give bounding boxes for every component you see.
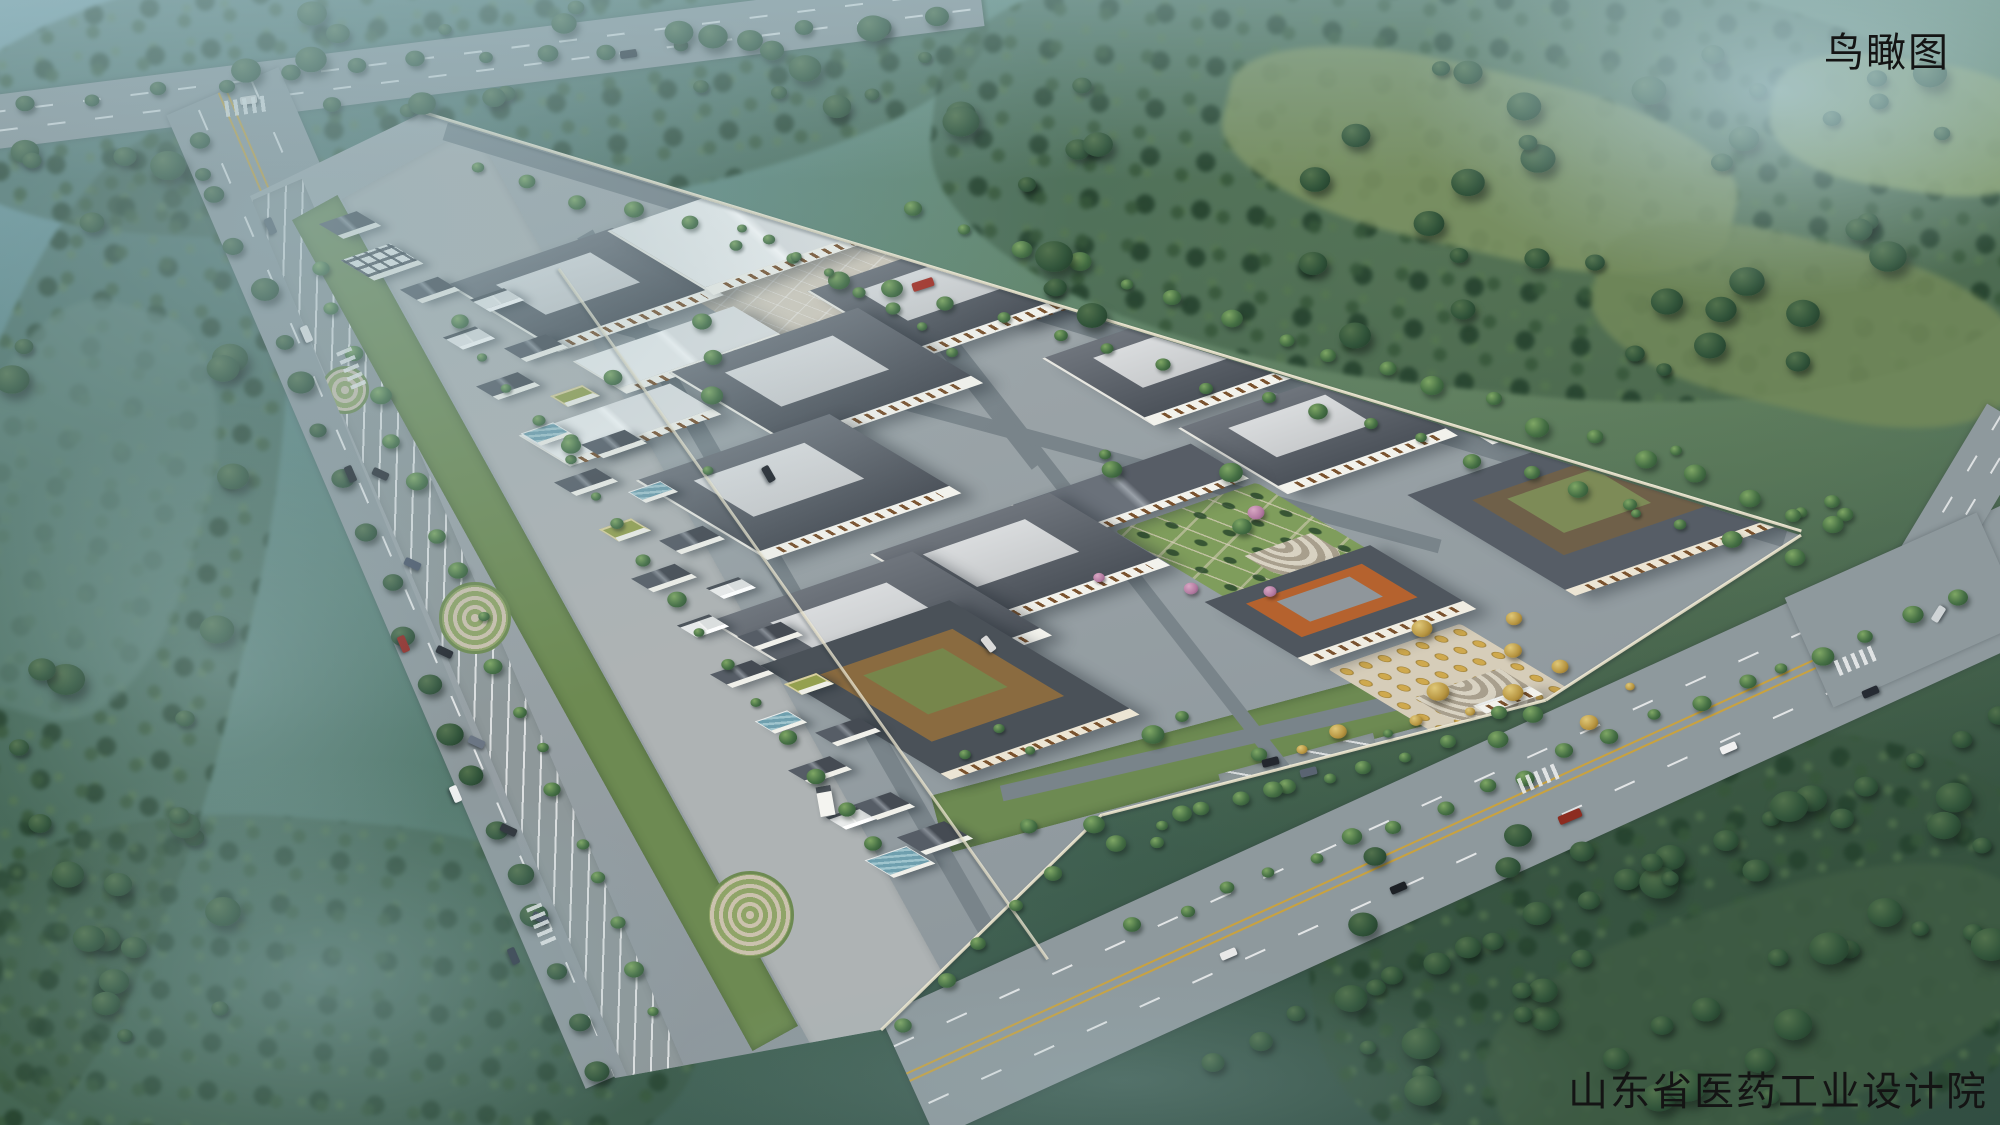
view-title: 鸟瞰图 bbox=[1824, 20, 1950, 78]
design-institute-credit: 山东省医药工业设计院 bbox=[1568, 1059, 1988, 1117]
crosswalk bbox=[1517, 762, 1564, 794]
crosswalk bbox=[1834, 644, 1881, 676]
crosswalk-layer bbox=[0, 0, 2000, 1125]
crosswalk bbox=[526, 903, 558, 950]
crosswalk bbox=[224, 95, 270, 117]
crosswalk bbox=[336, 347, 368, 394]
aerial-rendering: 鸟瞰图 山东省医药工业设计院 bbox=[0, 0, 2000, 1125]
